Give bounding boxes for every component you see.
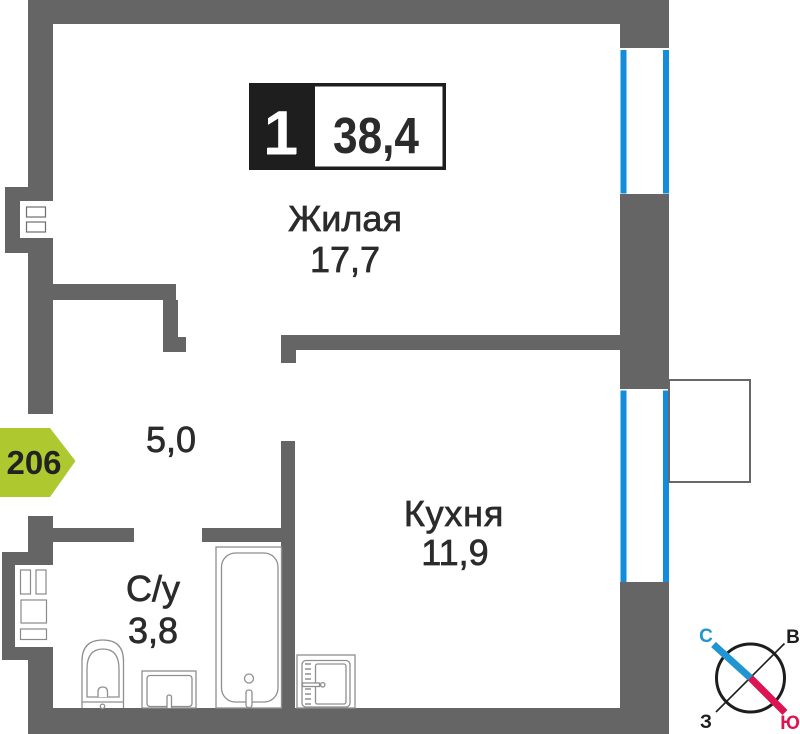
svg-text:38,4: 38,4 (333, 107, 420, 164)
svg-text:Жилая: Жилая (288, 198, 402, 239)
svg-text:5,0: 5,0 (146, 419, 196, 460)
svg-text:Кухня: Кухня (404, 493, 504, 534)
svg-text:1: 1 (264, 99, 298, 168)
svg-text:Ю: Ю (780, 713, 800, 734)
svg-text:З: З (700, 712, 712, 733)
svg-text:С: С (699, 626, 713, 647)
svg-text:В: В (786, 627, 800, 648)
svg-text:3,8: 3,8 (128, 610, 178, 651)
svg-text:17,7: 17,7 (310, 239, 380, 280)
svg-text:С/у: С/у (126, 568, 180, 609)
svg-text:11,9: 11,9 (421, 532, 488, 573)
svg-text:206: 206 (6, 444, 61, 481)
